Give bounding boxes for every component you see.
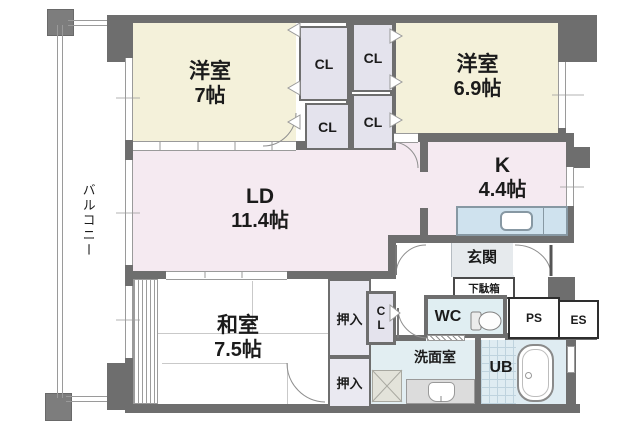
- futon-closet-label: 押入: [336, 309, 362, 328]
- japanese-room-floor: [158, 279, 328, 404]
- pipe-space-label: PS: [526, 311, 542, 325]
- closet-box: CL: [305, 103, 350, 150]
- wall: [566, 15, 597, 62]
- balcony-rail: [68, 20, 108, 26]
- tatami-line: [162, 363, 288, 364]
- floor-plan: バルコニー CL: [0, 0, 640, 427]
- electric-space-box: ES: [558, 300, 599, 339]
- closet-box: CL: [352, 94, 394, 150]
- washbasin-icon: [428, 382, 455, 402]
- western-room-69-floor: [396, 23, 558, 133]
- futon-closet-label: 押入: [336, 373, 362, 392]
- wall: [107, 15, 597, 23]
- closet-label: CL: [364, 50, 383, 66]
- tatami-line: [287, 363, 288, 404]
- closet-label: CL: [318, 119, 337, 135]
- bathtub-drain: [525, 372, 532, 379]
- wall: [420, 142, 428, 172]
- sliding-partition: [133, 141, 296, 151]
- closet-box: CL: [299, 26, 349, 101]
- wall: [475, 338, 481, 406]
- balcony-label: バルコニー: [78, 155, 98, 285]
- hall-closet-box: CL: [366, 291, 396, 345]
- entrance-porch: [513, 243, 551, 275]
- window: [125, 58, 133, 140]
- window: [125, 286, 133, 358]
- window: [125, 160, 133, 265]
- tatami-line: [252, 281, 253, 334]
- wall: [107, 363, 128, 410]
- futon-closet-box: 押入: [328, 279, 371, 357]
- hall-closet-label: CL: [374, 304, 388, 332]
- bath-window: [567, 346, 575, 373]
- balcony-rail: [57, 25, 63, 398]
- washing-machine-pan-icon: [372, 370, 402, 402]
- window: [558, 62, 566, 128]
- kitchen-sink-icon: [500, 211, 533, 231]
- wall: [125, 271, 166, 279]
- wall: [566, 147, 590, 168]
- japanese-room-wood-edge: [133, 279, 158, 404]
- folding-door-track: [427, 335, 465, 341]
- tatami-line: [158, 333, 328, 334]
- pipe-space-box: PS: [508, 297, 560, 339]
- doorway-threshold: [390, 133, 418, 143]
- closet-label: CL: [364, 114, 383, 130]
- sliding-partition: [166, 271, 287, 280]
- entrance-floor: [451, 240, 514, 277]
- western-room-7-floor: [133, 23, 296, 141]
- closet-label: CL: [315, 56, 334, 72]
- bathtub-icon: [517, 344, 554, 402]
- living-dining-floor: [133, 150, 396, 271]
- shoe-cabinet-label: 下駄箱: [468, 281, 500, 296]
- futon-closet-box: 押入: [328, 357, 371, 408]
- bath-tile-grid: [481, 340, 516, 404]
- wall: [388, 235, 574, 243]
- window: [566, 167, 574, 206]
- electric-space-label: ES: [570, 313, 586, 327]
- toilet-room: [424, 295, 507, 338]
- kitchen-counter-divider: [543, 208, 544, 234]
- closet-box: CL: [352, 23, 394, 92]
- wall: [287, 271, 396, 279]
